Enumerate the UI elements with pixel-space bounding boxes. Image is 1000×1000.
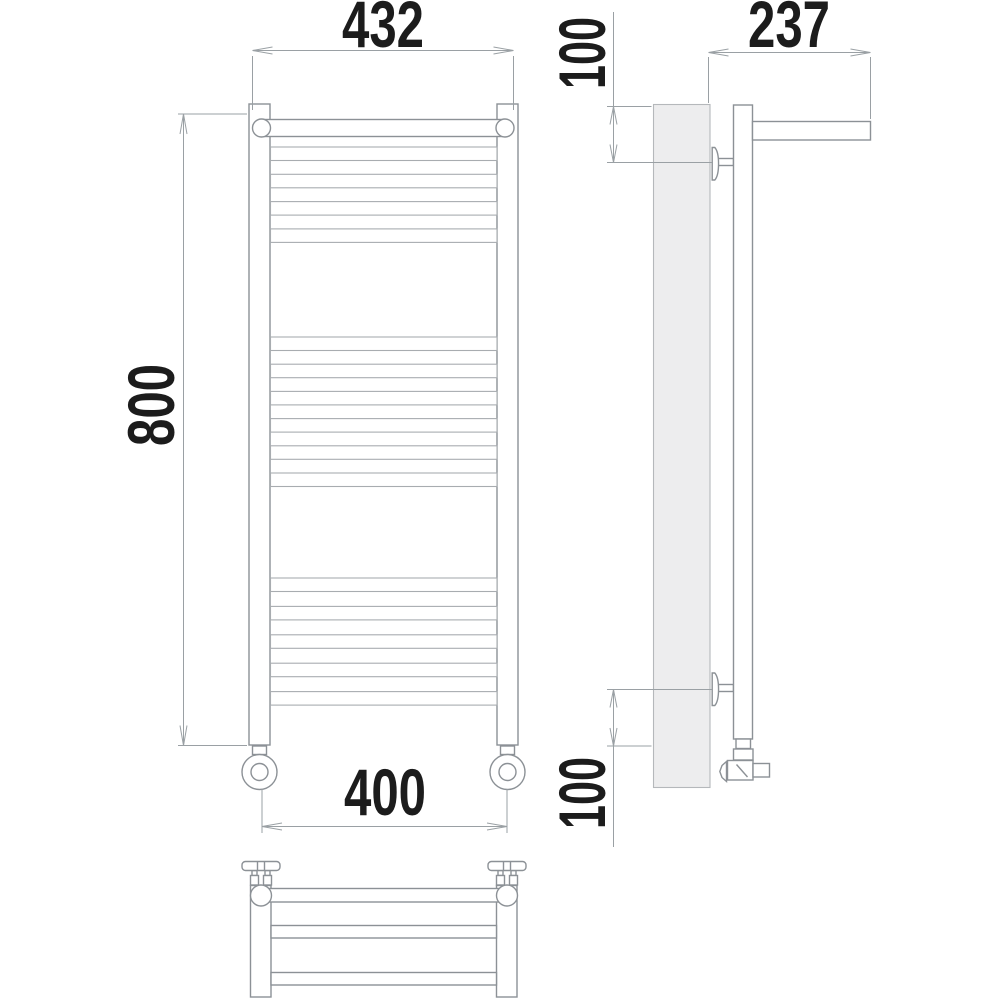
front-top-left-cap (253, 119, 271, 137)
dim-bottom-offset-value: 100 (545, 757, 619, 829)
dim-overall-width-value: 432 (342, 0, 424, 61)
front-rung-group-top (271, 147, 498, 242)
front-rung-group-bottom (271, 578, 498, 705)
side-upper-bracket (712, 148, 733, 181)
side-lower-bracket (712, 673, 733, 706)
dim-depth-value: 237 (748, 0, 830, 61)
dim-height-value: 800 (114, 364, 188, 446)
towel-radiator-technical-drawing: 432 800 400 237 100 100 (0, 0, 1000, 1000)
dim-overall-width: 432 (253, 0, 514, 110)
dim-height: 800 (114, 114, 247, 746)
plan-shelf-rail-1 (271, 926, 497, 939)
drawing-canvas: 432 800 400 237 100 100 (0, 0, 1000, 1000)
side-valve-assembly (720, 739, 770, 782)
front-right-valve (490, 746, 525, 790)
front-rung-group-middle (271, 337, 498, 487)
front-right-post (497, 104, 518, 745)
dim-top-offset-value: 100 (545, 17, 619, 89)
side-shelf-arm (753, 122, 871, 141)
plan-main-tube (261, 889, 507, 903)
front-top-shelf-bar (262, 120, 506, 137)
dim-connection-spacing-value: 400 (344, 755, 426, 829)
dim-connection-spacing: 400 (262, 755, 507, 833)
front-top-right-cap (496, 119, 514, 137)
dim-depth: 237 (709, 0, 871, 119)
side-collector-tube (734, 105, 753, 739)
front-left-valve (242, 746, 277, 790)
wall-panel (654, 105, 711, 788)
side-view (654, 105, 871, 788)
front-view (242, 104, 525, 790)
plan-view (242, 862, 526, 998)
plan-shelf-rail-2 (271, 973, 497, 986)
front-left-post (249, 104, 270, 745)
